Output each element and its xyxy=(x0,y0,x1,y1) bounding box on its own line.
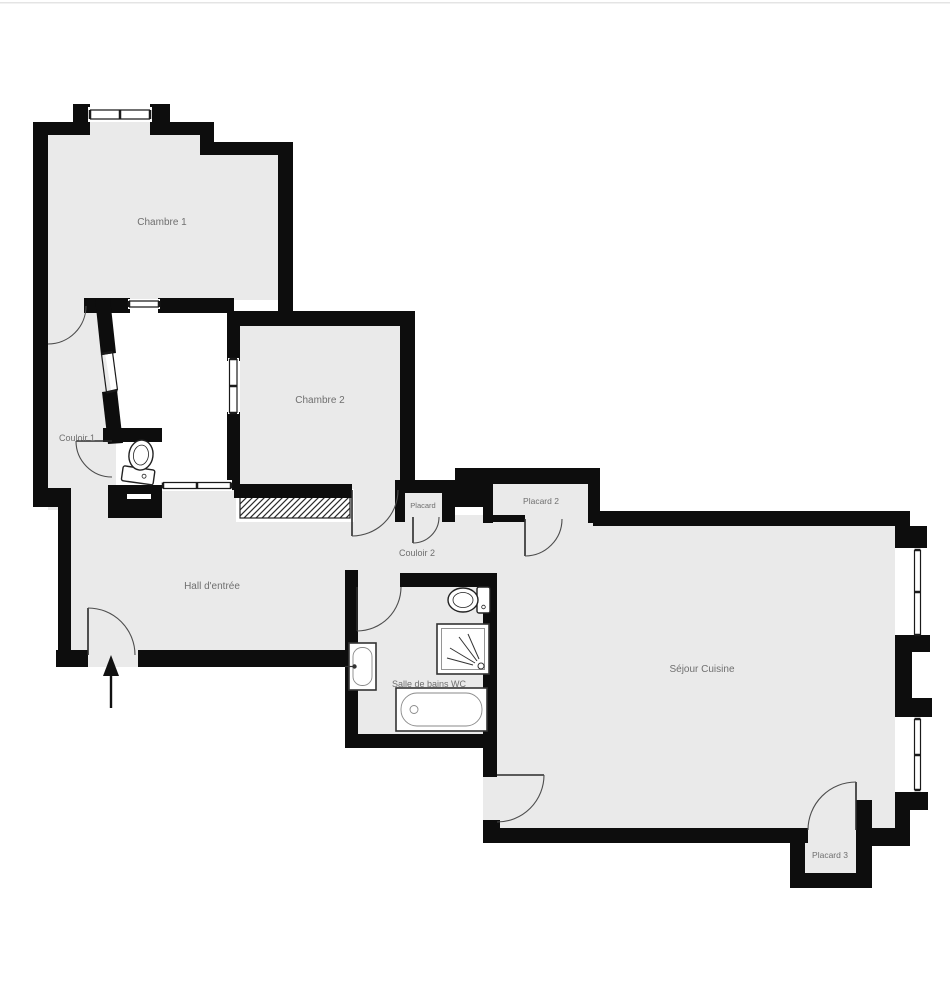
wall xyxy=(345,734,490,748)
bathtub-icon xyxy=(396,688,487,731)
window-chambre-1-courtyard xyxy=(128,299,160,309)
wall xyxy=(234,484,352,498)
room-sejour-label: Séjour Cuisine xyxy=(669,664,734,675)
wall xyxy=(895,526,927,548)
wall xyxy=(895,698,932,717)
wall xyxy=(593,511,910,526)
wall xyxy=(483,468,493,523)
room-chambre-2-label: Chambre 2 xyxy=(295,395,345,406)
wall xyxy=(400,573,490,587)
wall xyxy=(483,828,808,843)
wall xyxy=(58,507,71,667)
wall xyxy=(227,311,240,361)
room-couloir-2-label: Couloir 2 xyxy=(399,548,435,558)
window-chambre-2-courtyard xyxy=(228,358,239,414)
floor-plan-page: Chambre 1 Chambre 2 Couloir 1 Couloir 2 … xyxy=(0,0,950,1000)
wall xyxy=(227,412,240,490)
doorway-chambre-1 xyxy=(48,298,84,313)
wall xyxy=(895,652,912,698)
wall xyxy=(866,828,910,846)
wall xyxy=(483,820,500,843)
wall xyxy=(138,650,358,667)
wall xyxy=(150,104,170,135)
shower-icon xyxy=(437,624,489,674)
window-hall-courtyard xyxy=(162,480,232,491)
window-sejour-upper xyxy=(915,550,921,635)
floor-plan: Chambre 1 Chambre 2 Couloir 1 Couloir 2 … xyxy=(0,0,950,1000)
wall xyxy=(400,311,415,486)
wall xyxy=(455,468,483,507)
page-top-divider xyxy=(0,2,950,4)
room-hall-label: Hall d'entrée xyxy=(184,581,240,592)
wall xyxy=(856,800,872,888)
doorway-placard-3 xyxy=(808,828,856,843)
room-chambre-1-label: Chambre 1 xyxy=(137,217,187,228)
wall xyxy=(895,635,930,652)
wall xyxy=(442,480,455,522)
wall xyxy=(33,122,48,502)
window-sejour-lower xyxy=(915,719,921,790)
window-chambre-1-top xyxy=(88,107,152,122)
wall xyxy=(895,792,928,810)
wall xyxy=(103,428,162,442)
wall xyxy=(158,298,234,313)
wall xyxy=(108,485,162,518)
wall xyxy=(33,122,77,135)
room-couloir-1-label: Couloir 1 xyxy=(59,433,95,443)
doorway-sejour-side xyxy=(483,777,497,823)
wall xyxy=(278,142,293,313)
wall xyxy=(200,122,214,155)
room-placard-2-label: Placard 2 xyxy=(523,496,559,506)
room-bathroom-label: Salle de bains WC xyxy=(392,679,467,689)
room-placard-label: Placard xyxy=(410,501,435,510)
room-placard-3-label: Placard 3 xyxy=(812,850,848,860)
doorway-bathroom xyxy=(358,573,402,587)
wall-threshold-mark xyxy=(127,494,151,499)
doorway-placard-2 xyxy=(525,515,563,523)
wall xyxy=(227,311,415,326)
wall xyxy=(483,468,600,484)
toilet-bathroom-icon xyxy=(448,587,490,613)
wall xyxy=(73,104,90,135)
wall xyxy=(33,488,71,507)
wall xyxy=(56,650,88,667)
sink-icon xyxy=(345,643,376,690)
wall xyxy=(483,515,525,522)
